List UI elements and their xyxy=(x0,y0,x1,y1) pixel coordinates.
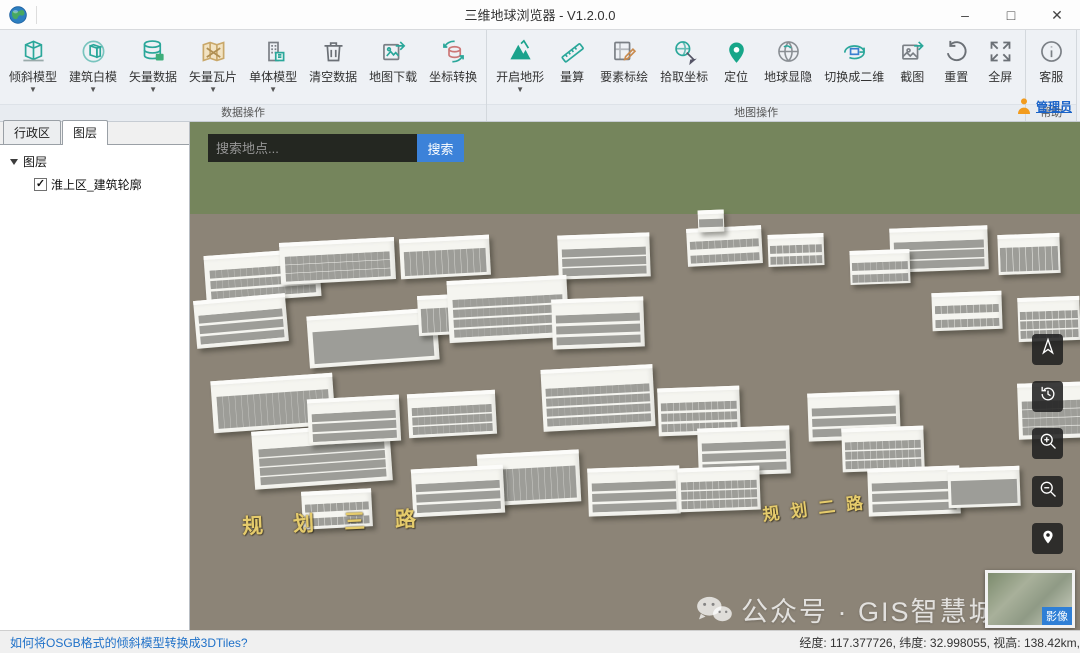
maximize-button[interactable]: □ xyxy=(988,0,1034,30)
globe-visibility-icon xyxy=(773,36,803,66)
admin-user[interactable]: 管理员 xyxy=(1016,97,1072,115)
map-3d-view[interactable]: 搜索 规划三路 规划二路 公众号 · GIS智慧城市 影像 xyxy=(190,122,1080,630)
dropdown-arrow-icon[interactable]: ▼ xyxy=(149,86,157,93)
map-control-history[interactable] xyxy=(1032,381,1063,412)
screenshot-icon xyxy=(897,36,927,66)
white-model-icon xyxy=(78,36,108,66)
toolbar-button-label: 建筑白模 xyxy=(69,68,117,85)
status-bar: 如何将OSGB格式的倾斜模型转换成3DTiles? 经度: 117.377726… xyxy=(0,630,1080,653)
layer-label: 淮上区_建筑轮廓 xyxy=(51,176,142,193)
pin-icon xyxy=(1038,526,1058,551)
minimize-button[interactable]: – xyxy=(942,0,988,30)
compass-icon xyxy=(1038,337,1058,362)
search-button[interactable]: 搜索 xyxy=(417,134,464,162)
toolbar-button-fullscreen[interactable]: 全屏 xyxy=(978,32,1022,104)
building-3d xyxy=(767,233,824,267)
help-link[interactable]: 如何将OSGB格式的倾斜模型转换成3DTiles? xyxy=(10,634,248,651)
building-3d xyxy=(947,466,1020,508)
window-title: 三维地球浏览器 - V1.2.0.0 xyxy=(0,5,1080,24)
building-3d xyxy=(279,237,396,285)
toolbar-button-label: 全屏 xyxy=(988,68,1012,85)
admin-label[interactable]: 管理员 xyxy=(1036,98,1072,115)
layer-panel: 行政区图层 图层 ✓ 淮上区_建筑轮廓 xyxy=(0,122,190,630)
toolbar-button-reset[interactable]: 重置 xyxy=(934,32,978,104)
tilt-model-icon xyxy=(18,36,48,66)
map-control-zoom-in[interactable] xyxy=(1032,428,1063,459)
terrain-icon xyxy=(505,36,535,66)
coord-transform-icon xyxy=(438,36,468,66)
locate-icon xyxy=(721,36,751,66)
wechat-icon xyxy=(695,595,733,625)
toolbar-button-screenshot[interactable]: 截图 xyxy=(890,32,934,104)
tree-expand-icon[interactable] xyxy=(10,159,18,165)
toolbar-button-label: 开启地形 xyxy=(496,68,544,85)
building-3d xyxy=(931,291,1002,331)
user-icon xyxy=(1016,97,1032,115)
toolbar-button-white-model[interactable]: 建筑白模▼ xyxy=(63,32,123,104)
vector-data-icon xyxy=(138,36,168,66)
toolbar-button-single-model[interactable]: 单体模型▼ xyxy=(243,32,303,104)
toolbar-button-coord-transform[interactable]: 坐标转换 xyxy=(423,32,483,104)
pick-coord-icon xyxy=(669,36,699,66)
toolbar-button-label: 拾取坐标 xyxy=(660,68,708,85)
building-3d xyxy=(587,465,681,516)
building-3d xyxy=(849,249,910,285)
dropdown-arrow-icon[interactable]: ▼ xyxy=(89,86,97,93)
toolbar-button-label: 地球显隐 xyxy=(764,68,812,85)
toolbar-button-label: 矢量数据 xyxy=(129,68,177,85)
toolbar-button-label: 要素标绘 xyxy=(600,68,648,85)
search-bar: 搜索 xyxy=(208,134,464,162)
customer-service-icon xyxy=(1036,36,1066,66)
building-3d xyxy=(540,364,655,432)
toolbar-button-label: 地图下载 xyxy=(369,68,417,85)
layer-checkbox[interactable]: ✓ xyxy=(34,178,47,191)
toolbar-button-map-download[interactable]: 地图下载 xyxy=(363,32,423,104)
dropdown-arrow-icon[interactable]: ▼ xyxy=(516,86,524,93)
watermark: 公众号 · GIS智慧城市 xyxy=(695,590,1027,629)
building-3d xyxy=(307,395,401,446)
building-3d xyxy=(193,293,289,349)
dropdown-arrow-icon[interactable]: ▼ xyxy=(269,86,277,93)
toolbar-button-label: 倾斜模型 xyxy=(9,68,57,85)
toolbar-group-title: 数据操作 xyxy=(0,104,486,121)
tree-item-building-outline[interactable]: ✓ 淮上区_建筑轮廓 xyxy=(34,176,183,193)
toolbar-button-tilt-model[interactable]: 倾斜模型▼ xyxy=(3,32,63,104)
tree-root-layers[interactable]: 图层 xyxy=(6,153,183,170)
measure-icon xyxy=(557,36,587,66)
toolbar-button-label: 重置 xyxy=(944,68,968,85)
toolbar-button-measure[interactable]: 量算 xyxy=(550,32,594,104)
vector-tile-icon xyxy=(198,36,228,66)
feature-plot-icon xyxy=(609,36,639,66)
reset-icon xyxy=(941,36,971,66)
switch-2d-icon xyxy=(839,36,869,66)
dropdown-arrow-icon[interactable]: ▼ xyxy=(29,86,37,93)
basemap-switcher[interactable]: 影像 xyxy=(985,570,1075,628)
panel-tabstrip: 行政区图层 xyxy=(0,122,189,145)
zoom-out-icon xyxy=(1038,479,1058,504)
single-model-icon xyxy=(258,36,288,66)
watermark-text: 公众号 · GIS智慧城市 xyxy=(741,590,1027,629)
dropdown-arrow-icon[interactable]: ▼ xyxy=(209,86,217,93)
toolbar-button-label: 矢量瓦片 xyxy=(189,68,237,85)
map-download-icon xyxy=(378,36,408,66)
history-icon xyxy=(1038,384,1058,409)
building-3d xyxy=(841,426,924,473)
toolbar-button-label: 单体模型 xyxy=(249,68,297,85)
building-3d xyxy=(399,235,491,280)
toolbar-button-label: 量算 xyxy=(560,68,584,85)
toolbar-button-clear-data[interactable]: 清空数据 xyxy=(303,32,363,104)
toolbar-button-locate[interactable]: 定位 xyxy=(714,32,758,104)
coordinates-readout: 经度: 117.377726, 纬度: 32.998055, 视高: 138.4… xyxy=(799,634,1080,651)
toolbar-button-globe-visibility[interactable]: 地球显隐 xyxy=(758,32,818,104)
toolbar-group-1: 倾斜模型▼建筑白模▼矢量数据▼矢量瓦片▼单体模型▼清空数据地图下载坐标转换数据操… xyxy=(0,30,487,121)
application-window: 三维地球浏览器 - V1.2.0.0 – □ ✕ 倾斜模型▼建筑白模▼矢量数据▼… xyxy=(0,0,1080,653)
toolbar-button-label: 客服 xyxy=(1039,68,1063,85)
fullscreen-icon xyxy=(985,36,1015,66)
search-input[interactable] xyxy=(208,134,417,162)
building-3d xyxy=(407,390,497,439)
layer-tree: 图层 ✓ 淮上区_建筑轮廓 xyxy=(0,145,189,201)
clear-data-icon xyxy=(318,36,348,66)
toolbar-button-label: 坐标转换 xyxy=(429,68,477,85)
toolbar-button-pick-coord[interactable]: 拾取坐标 xyxy=(654,32,714,104)
toolbar-button-label: 清空数据 xyxy=(309,68,357,85)
toolbar-button-feature-plot[interactable]: 要素标绘 xyxy=(594,32,654,104)
ribbon-toolbar: 倾斜模型▼建筑白模▼矢量数据▼矢量瓦片▼单体模型▼清空数据地图下载坐标转换数据操… xyxy=(0,30,1080,122)
tab-图层[interactable]: 图层 xyxy=(62,120,108,145)
building-3d xyxy=(698,210,725,233)
tab-行政区[interactable]: 行政区 xyxy=(3,120,61,144)
building-3d xyxy=(677,466,760,513)
map-control-locate[interactable] xyxy=(1032,523,1063,554)
title-bar: 三维地球浏览器 - V1.2.0.0 – □ ✕ xyxy=(0,0,1080,30)
toolbar-button-customer-service[interactable]: 客服 xyxy=(1029,32,1073,104)
basemap-badge: 影像 xyxy=(1042,607,1072,625)
toolbar-button-terrain[interactable]: 开启地形▼ xyxy=(490,32,550,104)
building-3d xyxy=(551,296,645,349)
tree-root-label: 图层 xyxy=(23,153,47,170)
toolbar-button-label: 截图 xyxy=(900,68,924,85)
toolbar-group-2: 开启地形▼量算要素标绘拾取坐标定位地球显隐切换成二维截图重置全屏地图操作 xyxy=(487,30,1026,121)
building-3d xyxy=(997,233,1060,275)
toolbar-button-vector-tile[interactable]: 矢量瓦片▼ xyxy=(183,32,243,104)
toolbar-group-title: 地图操作 xyxy=(487,104,1025,121)
close-button[interactable]: ✕ xyxy=(1034,0,1080,30)
zoom-in-icon xyxy=(1038,431,1058,456)
map-control-compass[interactable] xyxy=(1032,334,1063,365)
building-3d xyxy=(557,232,650,279)
toolbar-button-label: 切换成二维 xyxy=(824,68,884,85)
map-control-zoom-out[interactable] xyxy=(1032,476,1063,507)
toolbar-button-label: 定位 xyxy=(724,68,748,85)
toolbar-button-switch-2d[interactable]: 切换成二维 xyxy=(818,32,890,104)
toolbar-button-vector-data[interactable]: 矢量数据▼ xyxy=(123,32,183,104)
